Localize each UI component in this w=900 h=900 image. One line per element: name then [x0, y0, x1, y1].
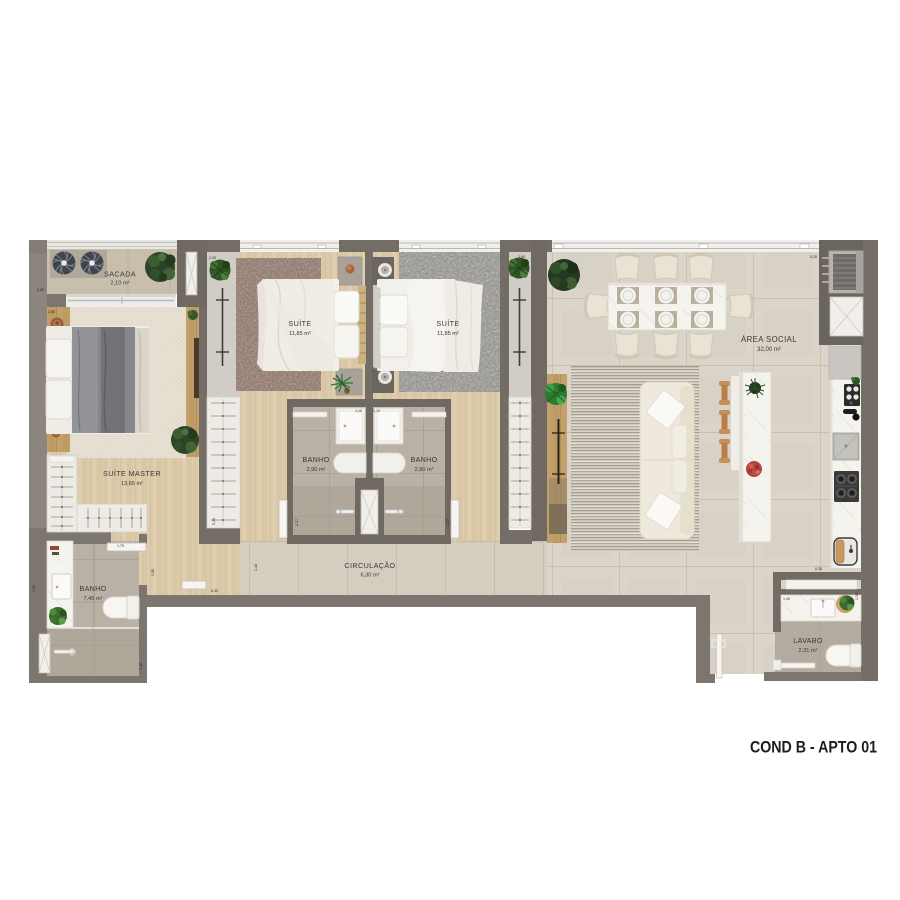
svg-text:2,86: 2,86: [48, 310, 55, 314]
svg-text:4,05: 4,05: [32, 585, 36, 592]
svg-text:1,50: 1,50: [151, 569, 155, 576]
svg-text:COND B - APTO 01: COND B - APTO 01: [750, 738, 877, 757]
svg-text:13,65 m²: 13,65 m²: [121, 481, 143, 487]
svg-text:1,79: 1,79: [117, 544, 124, 548]
svg-text:2,27: 2,27: [446, 519, 450, 526]
svg-text:6,30: 6,30: [211, 589, 218, 593]
svg-text:1,40: 1,40: [783, 597, 790, 601]
svg-text:1,10: 1,10: [355, 409, 362, 413]
svg-text:SUÍTE: SUÍTE: [436, 319, 459, 328]
svg-text:7,45 m²: 7,45 m²: [84, 596, 103, 602]
svg-text:1,35: 1,35: [855, 593, 859, 600]
svg-text:1,10: 1,10: [373, 409, 380, 413]
svg-text:2,90 m²: 2,90 m²: [307, 467, 326, 473]
svg-text:0,35: 0,35: [815, 567, 822, 571]
svg-text:2,95: 2,95: [209, 256, 216, 260]
svg-text:5,26: 5,26: [212, 518, 216, 525]
svg-text:2,95: 2,95: [518, 255, 525, 259]
svg-text:11,85 m²: 11,85 m²: [437, 331, 459, 337]
svg-text:32,00 m²: 32,00 m²: [757, 347, 781, 353]
svg-text:1,48: 1,48: [254, 564, 258, 571]
svg-text:SUÍTE MASTER: SUÍTE MASTER: [103, 469, 161, 478]
svg-text:SACADA: SACADA: [104, 270, 136, 279]
svg-text:BANHO: BANHO: [79, 584, 106, 593]
svg-text:11,85 m²: 11,85 m²: [289, 331, 311, 337]
svg-text:5,20: 5,20: [810, 255, 817, 259]
svg-text:2,90 m²: 2,90 m²: [415, 467, 434, 473]
svg-text:SUÍTE: SUÍTE: [288, 319, 311, 328]
svg-text:BANHO: BANHO: [410, 455, 437, 464]
svg-text:2,30: 2,30: [139, 663, 143, 670]
svg-text:6,30 m²: 6,30 m²: [361, 573, 380, 579]
svg-text:CIRCULAÇÃO: CIRCULAÇÃO: [344, 561, 395, 570]
svg-text:2,31 m²: 2,31 m²: [799, 648, 818, 654]
svg-text:BANHO: BANHO: [302, 455, 329, 464]
svg-text:2,10 m²: 2,10 m²: [111, 281, 130, 287]
svg-text:2,27: 2,27: [295, 519, 299, 526]
svg-text:ÁREA SOCIAL: ÁREA SOCIAL: [741, 335, 797, 344]
svg-text:2,85: 2,85: [37, 288, 44, 292]
svg-text:LAVABO: LAVABO: [793, 636, 823, 645]
